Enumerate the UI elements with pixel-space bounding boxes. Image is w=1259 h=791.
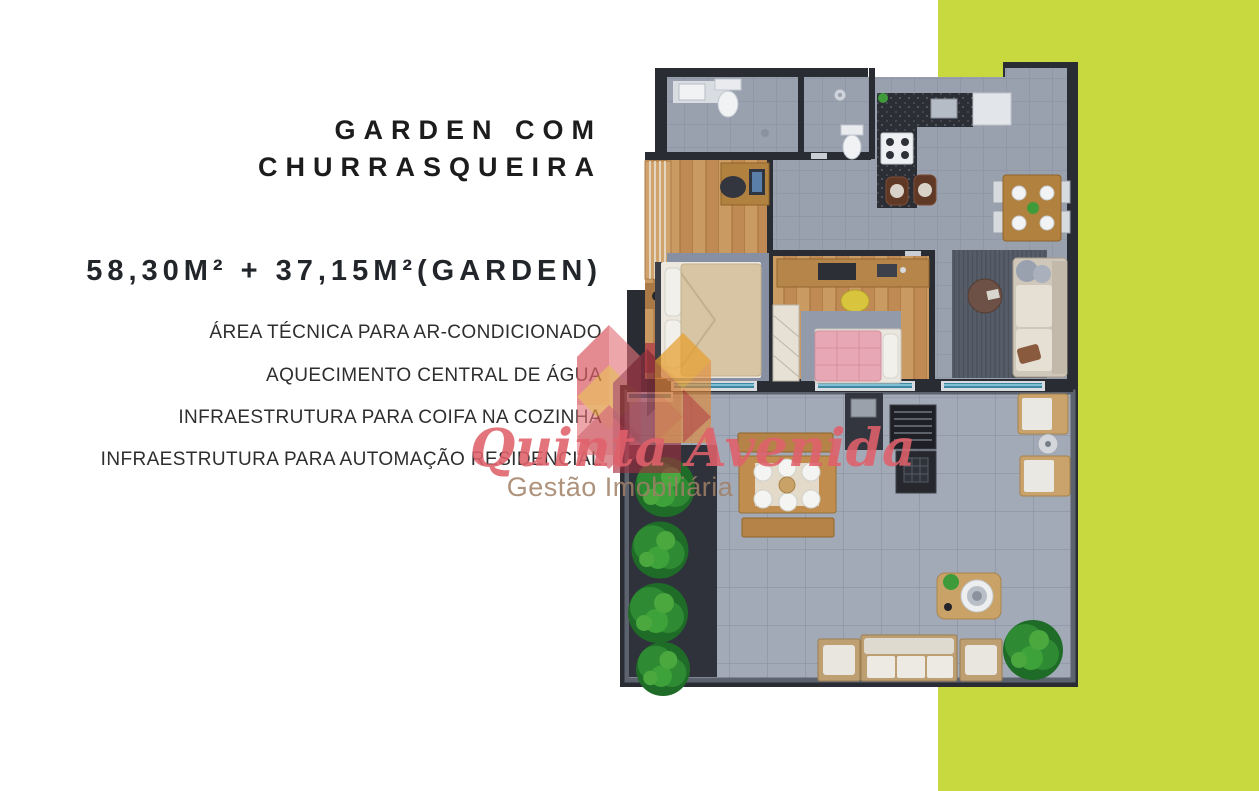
- bistro-table: [937, 573, 1001, 619]
- garden-dining-table: [738, 433, 836, 537]
- living-room: [952, 250, 1067, 378]
- outdoor-sofa-set: [818, 635, 1002, 681]
- feature-item: ÁREA TÉCNICA PARA AR-CONDICIONADO: [209, 322, 602, 344]
- floor-plan: [615, 55, 1090, 700]
- title-line-2: CHURRASQUEIRA: [258, 149, 602, 186]
- area-label: 58,30M² + 37,15M²(GARDEN): [86, 255, 602, 288]
- dining-table: [993, 175, 1070, 241]
- title-line-1: GARDEN COM: [258, 112, 602, 149]
- feature-item: AQUECIMENTO CENTRAL DE ÁGUA: [266, 365, 602, 387]
- feature-item: INFRAESTRUTURA PARA COIFA NA COZINHA: [178, 407, 602, 429]
- page-title: GARDEN COM CHURRASQUEIRA: [258, 112, 602, 186]
- feature-item: INFRAESTRUTURA PARA AUTOMAÇÃO RESIDENCIA…: [101, 449, 602, 471]
